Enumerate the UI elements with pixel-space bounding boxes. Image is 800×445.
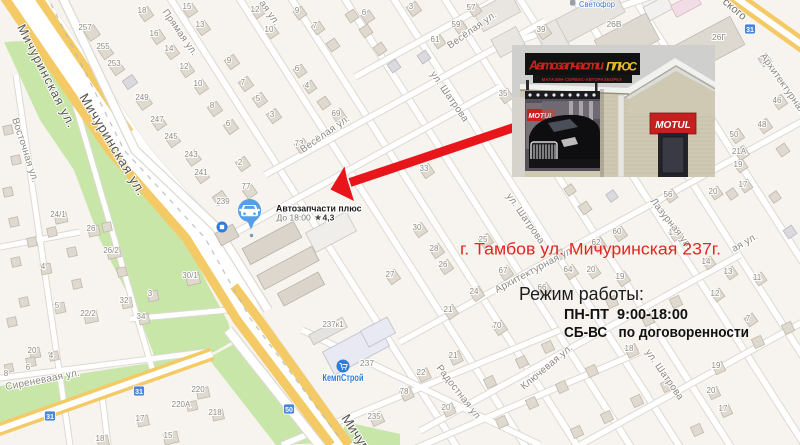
svg-text:22/2: 22/2 (80, 309, 96, 318)
svg-text:20: 20 (28, 346, 37, 355)
svg-text:253: 253 (107, 59, 121, 68)
svg-text:245: 245 (164, 132, 178, 141)
svg-text:27: 27 (386, 270, 395, 279)
svg-text:16: 16 (150, 29, 159, 38)
svg-text:ПН-ПТ 9:00-18:00: ПН-ПТ 9:00-18:00 (564, 307, 688, 323)
svg-text:77: 77 (242, 182, 251, 191)
svg-text:247: 247 (150, 115, 164, 124)
svg-text:12: 12 (711, 289, 720, 298)
svg-text:Светофор: Светофор (579, 0, 615, 9)
svg-text:17: 17 (136, 414, 145, 423)
svg-text:249: 249 (135, 93, 149, 102)
svg-text:46: 46 (773, 96, 782, 105)
svg-text:235: 235 (367, 412, 381, 421)
svg-text:19: 19 (734, 160, 743, 169)
svg-text:18: 18 (138, 6, 147, 15)
svg-text:11: 11 (753, 273, 762, 282)
svg-text:239: 239 (216, 197, 230, 206)
svg-text:До 18:00: До 18:00 (277, 213, 311, 223)
svg-text:19: 19 (616, 272, 625, 281)
svg-text:7: 7 (241, 78, 246, 87)
svg-text:14: 14 (165, 44, 174, 53)
svg-text:6: 6 (226, 119, 231, 128)
svg-text:26В: 26В (606, 19, 621, 29)
svg-text:30: 30 (413, 223, 422, 232)
svg-text:33: 33 (420, 164, 429, 173)
svg-text:64: 64 (564, 265, 573, 274)
svg-text:18: 18 (625, 344, 634, 353)
svg-text:17: 17 (739, 180, 748, 189)
svg-text:13: 13 (196, 20, 205, 29)
svg-text:7: 7 (746, 314, 751, 323)
svg-text:Автозапчасти: Автозапчасти (528, 59, 604, 73)
svg-text:50: 50 (285, 407, 293, 414)
svg-text:20: 20 (587, 265, 596, 274)
svg-text:31: 31 (746, 27, 754, 34)
svg-text:8: 8 (4, 369, 9, 378)
svg-text:9: 9 (227, 56, 232, 65)
svg-text:6: 6 (362, 8, 367, 17)
svg-text:8: 8 (210, 101, 215, 110)
svg-text:5: 5 (256, 94, 261, 103)
svg-text:243: 243 (184, 150, 198, 159)
svg-text:20: 20 (709, 187, 718, 196)
svg-text:78: 78 (400, 387, 409, 396)
svg-text:50: 50 (730, 130, 739, 139)
svg-text:237к1: 237к1 (322, 320, 344, 329)
svg-text:220: 220 (191, 385, 205, 394)
svg-text:5: 5 (55, 301, 60, 310)
svg-text:3: 3 (270, 110, 275, 119)
svg-text:24: 24 (470, 287, 479, 296)
svg-text:31: 31 (46, 414, 54, 421)
svg-text:26Г: 26Г (712, 32, 726, 42)
svg-text:СБ-ВС по договоренности: СБ-ВС по договоренности (564, 325, 749, 341)
svg-text:4: 4 (41, 262, 46, 271)
svg-text:220А: 220А (172, 400, 191, 409)
svg-text:4: 4 (49, 351, 54, 360)
svg-text:60: 60 (613, 227, 622, 236)
svg-text:4,3: 4,3 (323, 213, 335, 223)
svg-text:7: 7 (313, 21, 318, 30)
svg-text:3: 3 (148, 289, 153, 298)
svg-text:2: 2 (238, 158, 243, 167)
svg-text:39: 39 (537, 25, 546, 34)
svg-text:13: 13 (724, 267, 733, 276)
svg-text:255: 255 (96, 42, 110, 51)
svg-text:218: 218 (208, 408, 222, 417)
svg-text:18: 18 (96, 434, 105, 443)
svg-text:4: 4 (305, 81, 310, 90)
svg-text:Режим работы:: Режим работы: (519, 283, 644, 304)
svg-text:15: 15 (164, 431, 173, 440)
svg-text:21: 21 (449, 351, 458, 360)
svg-text:67: 67 (499, 266, 508, 275)
svg-text:24/1: 24/1 (50, 210, 66, 219)
svg-text:21: 21 (444, 305, 453, 314)
svg-text:6: 6 (26, 363, 31, 372)
svg-text:MOTUL: MOTUL (655, 120, 691, 131)
svg-text:70: 70 (493, 321, 502, 330)
svg-text:ПЛЮС: ПЛЮС (606, 60, 637, 74)
svg-text:35: 35 (499, 89, 508, 98)
svg-text:МАГАЗИН·СЕРВИС·АВТОРАЗБОРКА: МАГАЗИН·СЕРВИС·АВТОРАЗБОРКА (542, 77, 622, 82)
svg-text:22: 22 (417, 368, 426, 377)
svg-text:17: 17 (719, 404, 728, 413)
svg-text:28: 28 (430, 244, 439, 253)
svg-text:241: 241 (194, 168, 208, 177)
svg-text:31: 31 (135, 389, 143, 396)
svg-text:19: 19 (712, 361, 721, 370)
svg-text:34: 34 (137, 312, 146, 321)
svg-text:57: 57 (467, 3, 476, 12)
svg-text:КемпСтрой: КемпСтрой (323, 372, 364, 384)
svg-text:26/2: 26/2 (103, 246, 119, 255)
svg-text:12: 12 (180, 62, 189, 71)
svg-text:20: 20 (442, 403, 451, 412)
svg-text:6: 6 (295, 64, 300, 73)
svg-text:г. Тамбов ул. Мичуринская 237г: г. Тамбов ул. Мичуринская 237г. (460, 241, 721, 259)
svg-text:10: 10 (194, 79, 203, 88)
svg-text:★: ★ (314, 213, 322, 223)
svg-text:56: 56 (664, 190, 673, 199)
svg-text:26: 26 (87, 224, 96, 233)
svg-text:30/1: 30/1 (182, 271, 198, 280)
svg-text:59: 59 (452, 20, 461, 29)
svg-text:237: 237 (360, 358, 374, 368)
svg-text:257: 257 (78, 23, 92, 32)
svg-text:9: 9 (295, 6, 300, 15)
svg-text:32: 32 (120, 296, 129, 305)
svg-text:3: 3 (409, 2, 414, 11)
svg-text:20: 20 (707, 386, 716, 395)
svg-text:26: 26 (439, 260, 448, 269)
svg-text:21А: 21А (732, 147, 747, 156)
svg-text:15: 15 (183, 2, 192, 11)
svg-text:48: 48 (758, 120, 767, 129)
svg-text:61: 61 (431, 35, 440, 44)
